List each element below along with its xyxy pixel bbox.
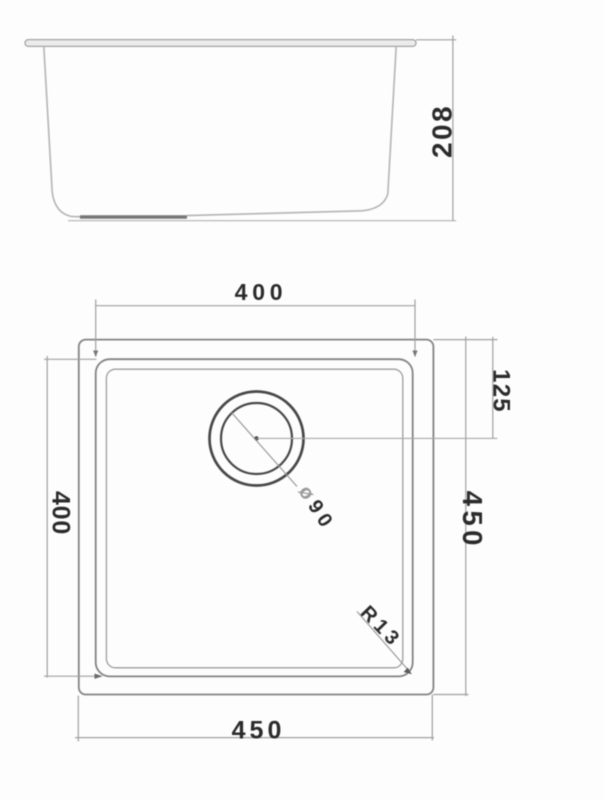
svg-text:400: 400 <box>47 491 75 535</box>
svg-text:125: 125 <box>488 369 515 413</box>
svg-text:450: 450 <box>457 491 488 550</box>
svg-text:450: 450 <box>232 716 286 744</box>
svg-text:208: 208 <box>427 104 458 158</box>
svg-text:400: 400 <box>235 279 288 305</box>
